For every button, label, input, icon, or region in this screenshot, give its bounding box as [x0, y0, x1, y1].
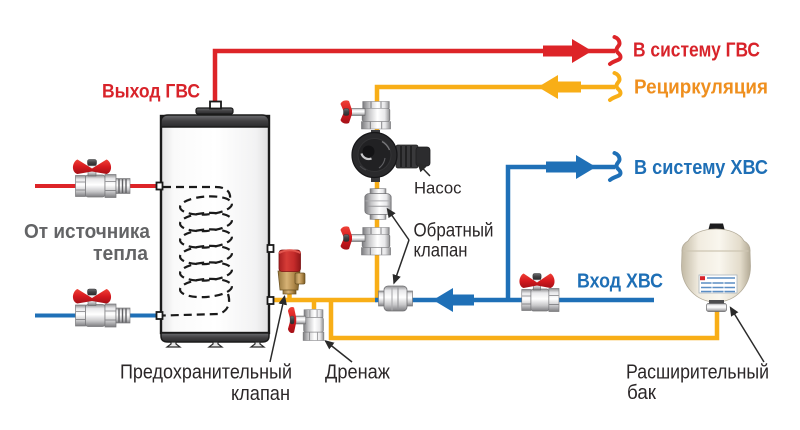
svg-text:Выход ГВС: Выход ГВС: [102, 81, 200, 103]
svg-text:бак: бак: [627, 382, 656, 404]
svg-text:Предохранительный: Предохранительный: [120, 362, 292, 384]
svg-text:тепла: тепла: [93, 243, 149, 265]
svg-text:От источника: От источника: [24, 221, 151, 243]
svg-text:Обратный: Обратный: [414, 221, 494, 242]
svg-text:В систему ХВС: В систему ХВС: [634, 157, 768, 179]
svg-text:Расширительный: Расширительный: [626, 362, 769, 384]
svg-text:Дренаж: Дренаж: [325, 362, 391, 384]
svg-text:Насос: Насос: [414, 180, 462, 198]
svg-text:В систему ГВС: В систему ГВС: [633, 40, 760, 62]
svg-text:клапан: клапан: [231, 383, 290, 405]
svg-text:клапан: клапан: [414, 241, 468, 262]
svg-text:Вход ХВС: Вход ХВС: [577, 271, 663, 293]
svg-text:Рециркуляция: Рециркуляция: [634, 77, 768, 99]
